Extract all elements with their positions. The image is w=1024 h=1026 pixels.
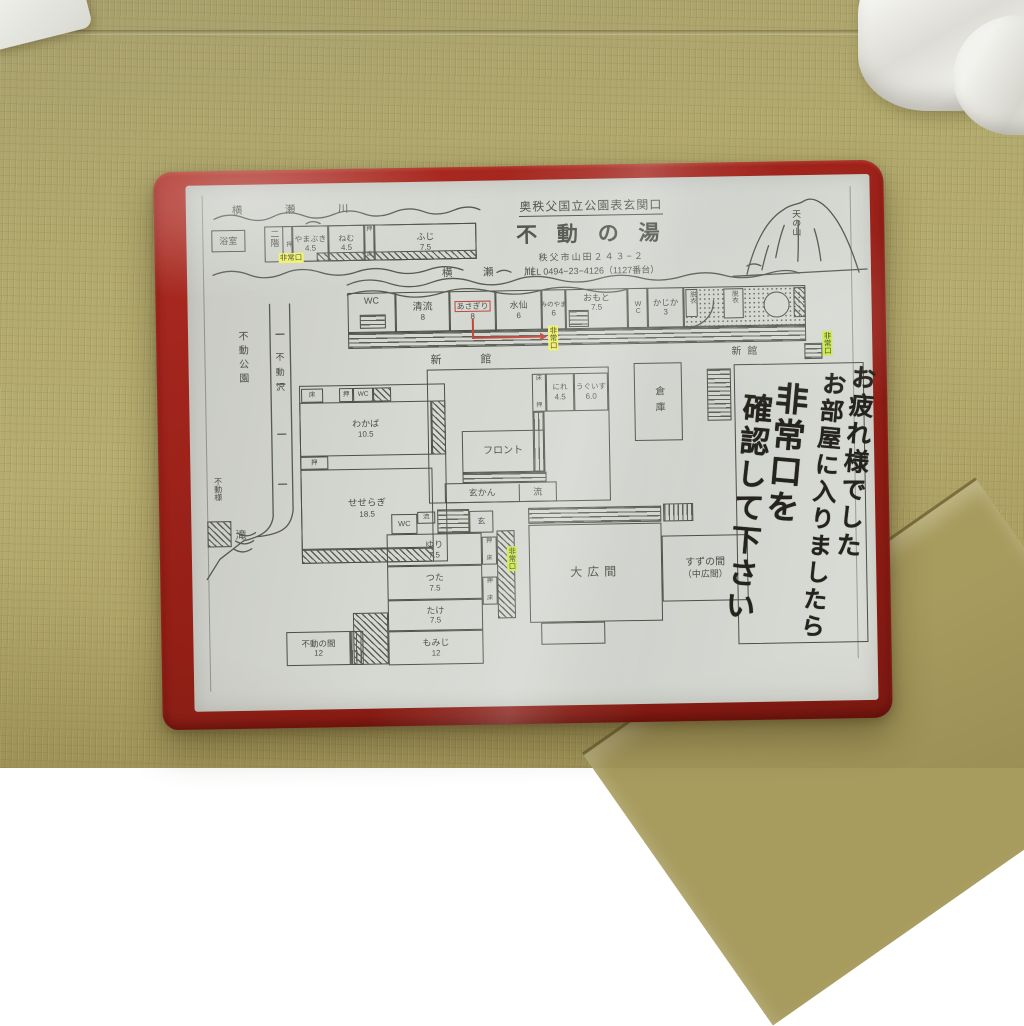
escape-route-arrow	[540, 333, 547, 341]
river-top-line	[214, 207, 480, 222]
emergency-exit-tag-south: 非常口	[507, 546, 517, 571]
emergency-exit-tag-corridor: 非常口	[548, 325, 558, 350]
river-top-line2	[213, 266, 463, 278]
mountain-strokes	[761, 221, 821, 270]
handwritten-note: お疲れ様でした お部屋に入りましたら 非常口を 確認して下さい	[717, 358, 882, 671]
floor-plan-paper: 奥秩父国立公園表玄関口 不 動 の 湯 秩父市山田２４３−２ TEL 0494−…	[185, 174, 878, 712]
red-menu-folder: 奥秩父国立公園表玄関口 不 動 の 湯 秩父市山田２４３−２ TEL 0494−…	[153, 160, 893, 731]
floor-plan: 奥秩父国立公園表玄関口 不 動 の 湯 秩父市山田２４３−２ TEL 0494−…	[185, 174, 878, 712]
bath-door-arc	[688, 301, 714, 327]
stream-channel	[203, 304, 295, 579]
inn-name: 不 動 の 湯	[481, 216, 701, 250]
river-mid-line2	[347, 286, 627, 299]
emergency-exit-tag-annex: 非常口	[279, 253, 304, 263]
park-entrance-subtitle: 奥秩父国立公園表玄関口	[519, 196, 662, 217]
plastic-bag	[858, 0, 1024, 150]
title-block: 奥秩父国立公園表玄関口 不 動 の 湯 秩父市山田２４３−２ TEL 0494−…	[481, 195, 702, 279]
waterfall-strokes	[230, 334, 288, 552]
emergency-exit-tag-right: 非常口	[822, 331, 832, 356]
